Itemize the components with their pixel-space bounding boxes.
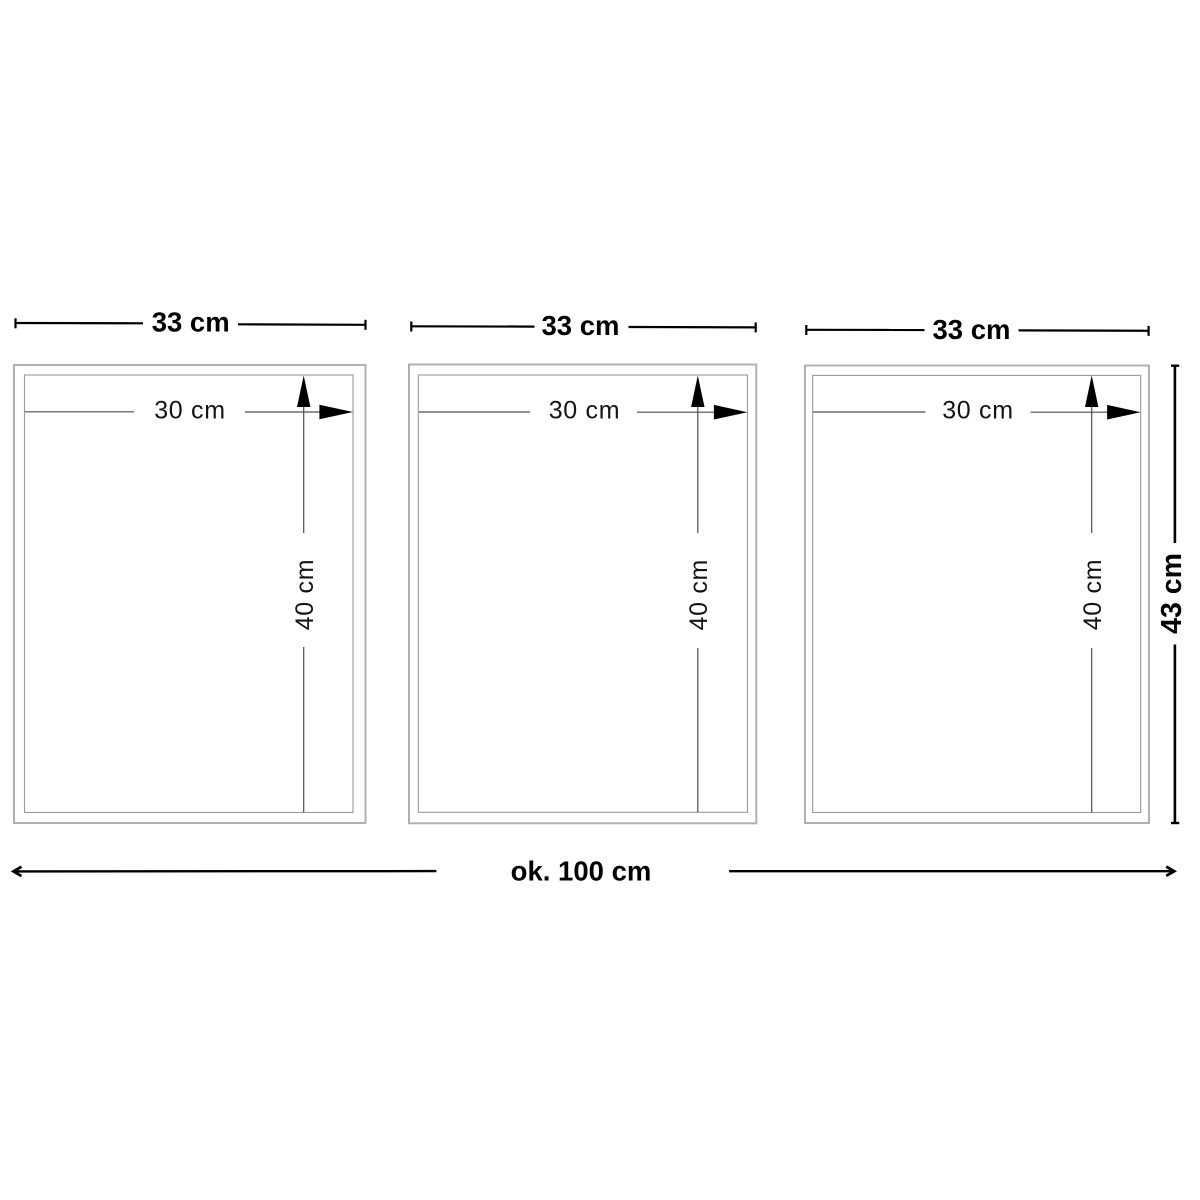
- svg-text:ok. 100 cm: ok. 100 cm: [511, 856, 652, 887]
- svg-text:33 cm: 33 cm: [542, 310, 620, 341]
- svg-text:40 cm: 40 cm: [1079, 559, 1107, 631]
- svg-text:30 cm: 30 cm: [154, 397, 226, 425]
- svg-text:33 cm: 33 cm: [933, 314, 1011, 345]
- svg-text:30 cm: 30 cm: [942, 397, 1014, 425]
- svg-text:40 cm: 40 cm: [685, 559, 713, 631]
- svg-text:43 cm: 43 cm: [1156, 553, 1188, 634]
- svg-text:33 cm: 33 cm: [152, 307, 230, 338]
- svg-text:40 cm: 40 cm: [291, 559, 319, 631]
- svg-text:30 cm: 30 cm: [549, 397, 621, 425]
